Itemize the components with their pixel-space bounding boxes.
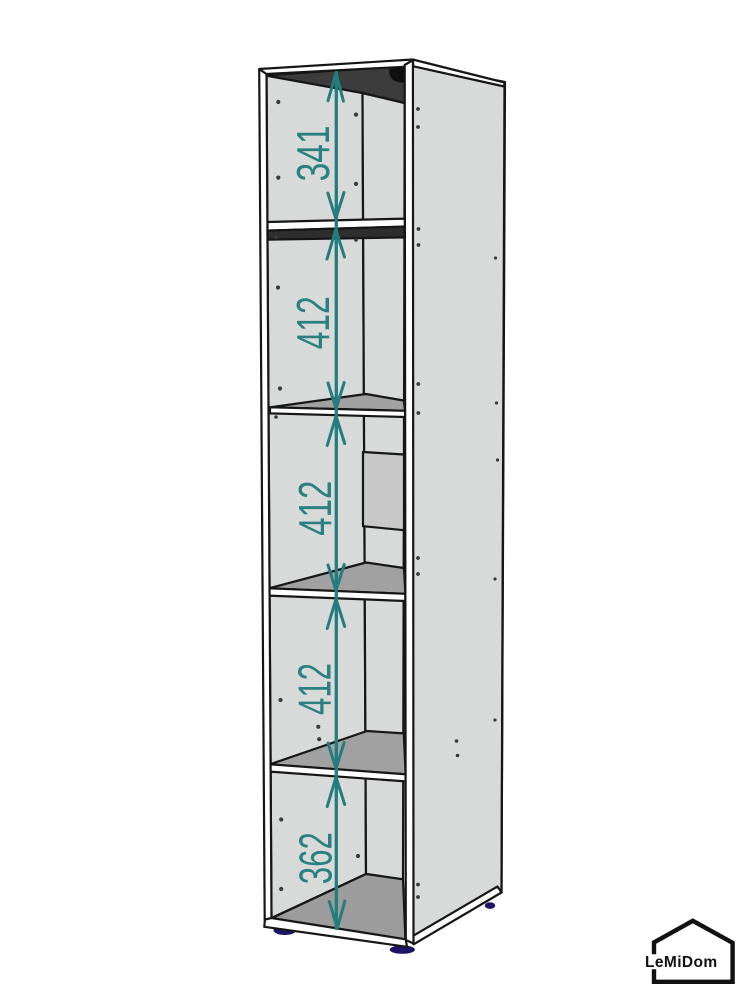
svg-text:341: 341 — [287, 125, 339, 181]
svg-text:412: 412 — [287, 296, 339, 349]
svg-text:362: 362 — [289, 832, 341, 884]
svg-text:412: 412 — [289, 663, 341, 715]
svg-text:412: 412 — [289, 481, 341, 536]
